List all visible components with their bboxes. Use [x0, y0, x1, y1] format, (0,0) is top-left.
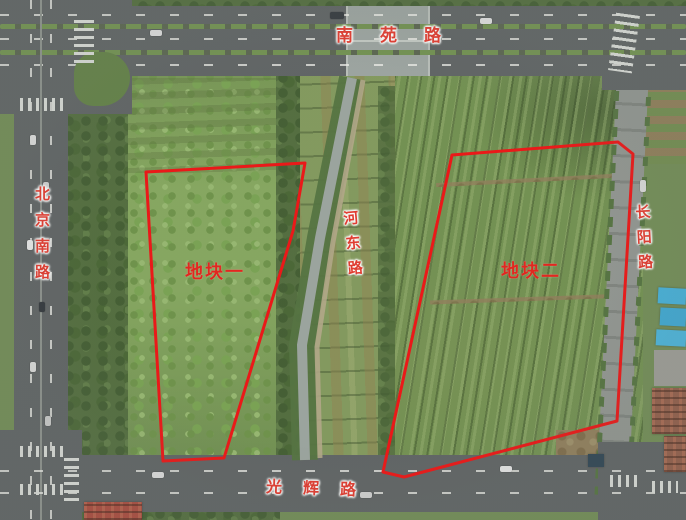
- blue-roof-building: [660, 307, 686, 326]
- vehicle: [330, 12, 344, 19]
- road-south-lane-1: [0, 470, 686, 472]
- vehicle: [45, 416, 51, 426]
- aerial-photo: 南苑路 北京南路 河东路 长阳路 光辉路 地块一 地块二: [0, 0, 686, 520]
- blue-roof-building: [656, 329, 686, 347]
- vehicle: [640, 180, 646, 192]
- road-label-north: 南苑路: [336, 27, 468, 44]
- vehicle: [30, 135, 36, 145]
- parcel1-label: 地块一: [185, 263, 245, 281]
- paved-yard: [654, 350, 686, 386]
- dark-pond: [588, 454, 604, 467]
- village-roofs-east: [652, 388, 686, 434]
- roofs-southeast-corner: [664, 436, 686, 472]
- vehicle: [500, 466, 512, 472]
- road-west-lane-2: [50, 0, 52, 520]
- road-label-east: 长阳路: [634, 204, 653, 280]
- crosswalk-south-road-east-2: [652, 481, 678, 493]
- vehicle: [150, 30, 162, 36]
- crosswalk-west-road-north: [20, 98, 66, 111]
- trees-plots-east-line: [378, 86, 395, 466]
- vehicle: [30, 362, 36, 372]
- vehicle: [480, 18, 492, 24]
- crosswalk-west-road-south-2: [20, 484, 66, 495]
- crosswalk-south-road-east-1: [610, 475, 638, 487]
- blue-roof-building: [658, 287, 686, 304]
- parcel2-label: 地块二: [501, 262, 561, 280]
- crosswalk-south-road-west: [64, 458, 79, 506]
- crosswalk-west-road-south-1: [20, 446, 66, 457]
- vehicle: [152, 472, 164, 478]
- road-label-west: 北京南路: [34, 186, 49, 290]
- red-roofs-southwest: [84, 502, 142, 520]
- vehicle: [39, 302, 45, 312]
- road-west-lane-1: [30, 0, 32, 520]
- crosswalk-north-road-west: [74, 20, 94, 64]
